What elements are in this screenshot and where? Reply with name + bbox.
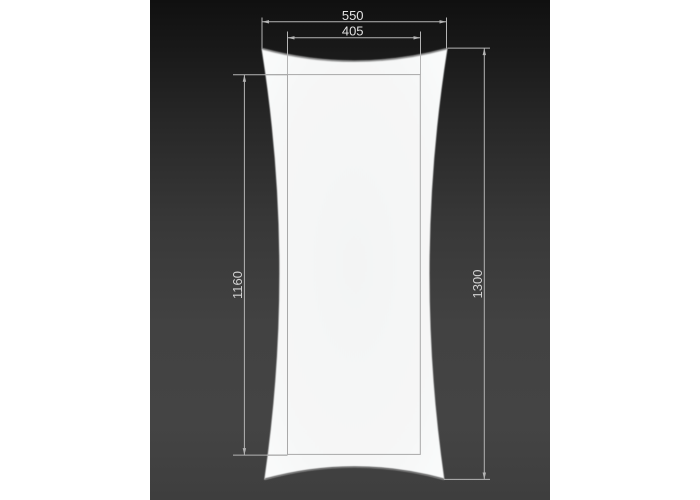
svg-text:1160: 1160 bbox=[230, 271, 245, 299]
svg-text:1300: 1300 bbox=[470, 270, 485, 299]
svg-text:405: 405 bbox=[342, 23, 364, 38]
svg-text:550: 550 bbox=[342, 8, 364, 23]
